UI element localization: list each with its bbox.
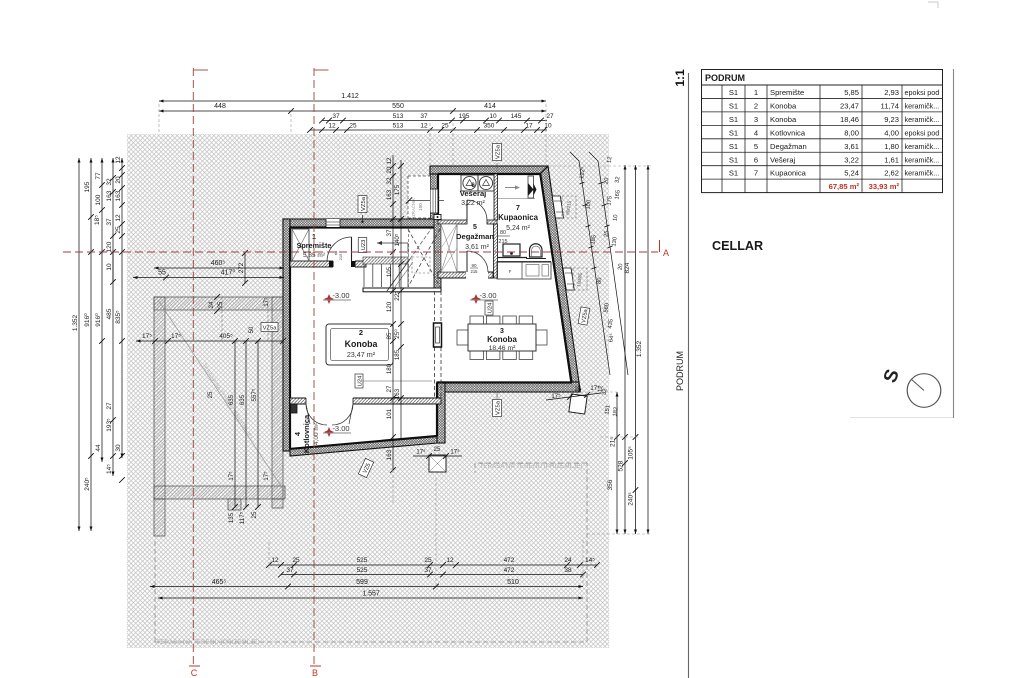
svg-text:635: 635 <box>239 394 246 405</box>
svg-text:-3.00: -3.00 <box>479 291 496 300</box>
svg-text:U24: U24 <box>357 375 363 386</box>
svg-text:240⁵: 240⁵ <box>628 492 635 506</box>
svg-text:Kupaonica: Kupaonica <box>770 169 807 178</box>
svg-text:25: 25 <box>575 387 582 393</box>
svg-text:38: 38 <box>564 567 572 574</box>
svg-text:80: 80 <box>597 277 604 284</box>
svg-text:215: 215 <box>498 239 507 245</box>
svg-text:215: 215 <box>471 269 479 274</box>
svg-text:37: 37 <box>386 229 393 236</box>
svg-text:6: 6 <box>471 182 475 189</box>
svg-text:U24: U24 <box>487 302 493 313</box>
svg-text:VZ5a: VZ5a <box>495 144 501 159</box>
svg-text:510: 510 <box>507 579 519 586</box>
svg-text:12: 12 <box>446 557 454 564</box>
svg-text:105⁵: 105⁵ <box>628 446 635 460</box>
svg-text:215: 215 <box>338 253 343 260</box>
svg-text:17⁵: 17⁵ <box>263 297 270 307</box>
svg-text:1,61: 1,61 <box>884 155 899 164</box>
svg-text:20: 20 <box>618 263 625 270</box>
svg-text:S1: S1 <box>729 155 738 164</box>
svg-text:7: 7 <box>516 205 520 212</box>
svg-text:TERASA NA TERENU (PRIZEMLJE): TERASA NA TERENU (PRIZEMLJE) <box>479 463 582 470</box>
svg-text:3,22 m²: 3,22 m² <box>461 200 485 207</box>
svg-text:1,80: 1,80 <box>884 142 899 151</box>
svg-text:Vešeraj: Vešeraj <box>770 155 796 164</box>
svg-text:3: 3 <box>500 328 504 335</box>
svg-text:20: 20 <box>604 177 611 184</box>
svg-text:S1: S1 <box>729 128 738 137</box>
svg-text:117⁵: 117⁵ <box>239 511 246 524</box>
svg-text:keramičk...: keramičk... <box>905 101 940 110</box>
svg-text:Konoba: Konoba <box>487 335 517 344</box>
svg-text:24: 24 <box>564 557 572 564</box>
svg-text:7: 7 <box>754 169 758 178</box>
svg-text:2: 2 <box>359 328 363 337</box>
svg-text:180: 180 <box>386 363 393 374</box>
svg-text:37: 37 <box>106 218 113 226</box>
svg-text:528: 528 <box>618 460 625 471</box>
svg-text:32: 32 <box>602 388 609 395</box>
svg-text:25: 25 <box>424 557 432 564</box>
svg-text:A: A <box>663 248 669 258</box>
svg-text:23,47: 23,47 <box>840 101 859 110</box>
svg-text:keramičk...: keramičk... <box>905 115 940 124</box>
svg-text:175: 175 <box>394 184 401 195</box>
svg-text:11,74: 11,74 <box>881 101 899 110</box>
svg-text:120: 120 <box>106 241 113 252</box>
svg-text:513: 513 <box>393 123 404 130</box>
svg-text:25: 25 <box>441 123 449 130</box>
svg-text:1.557: 1.557 <box>362 591 380 598</box>
svg-text:635: 635 <box>228 394 235 405</box>
svg-text:18⁵: 18⁵ <box>94 215 101 225</box>
svg-text:485: 485 <box>106 308 113 319</box>
svg-text:417⁰: 417⁰ <box>221 269 236 277</box>
svg-text:185: 185 <box>394 349 401 360</box>
svg-text:Kotlovnica: Kotlovnica <box>302 414 311 453</box>
svg-text:414: 414 <box>484 103 496 110</box>
svg-text:557⁵: 557⁵ <box>251 388 258 401</box>
svg-text:17⁵: 17⁵ <box>450 449 460 456</box>
svg-text:12: 12 <box>115 156 122 164</box>
svg-text:1.352: 1.352 <box>72 314 79 331</box>
svg-text:465⁵: 465⁵ <box>212 579 227 586</box>
svg-text:32: 32 <box>386 177 393 184</box>
svg-text:33,93 m²: 33,93 m² <box>869 182 900 191</box>
svg-text:22⁵: 22⁵ <box>394 291 401 301</box>
svg-text:VZ5a: VZ5a <box>263 325 278 331</box>
svg-text:5,24 m²: 5,24 m² <box>506 225 530 232</box>
svg-text:80: 80 <box>500 230 506 236</box>
svg-text:CELLAR: CELLAR <box>712 239 763 253</box>
svg-text:C: C <box>191 668 198 678</box>
svg-text:350: 350 <box>484 123 495 130</box>
svg-text:272: 272 <box>238 262 245 273</box>
svg-text:525: 525 <box>357 557 368 564</box>
svg-text:140⁵: 140⁵ <box>394 233 401 246</box>
svg-text:824: 824 <box>624 262 631 273</box>
svg-text:PODRUM: PODRUM <box>675 351 685 391</box>
svg-text:keramičk...: keramičk... <box>905 169 940 178</box>
svg-text:3,61: 3,61 <box>844 142 859 151</box>
svg-text:Konoba: Konoba <box>345 339 378 349</box>
svg-text:17⁵: 17⁵ <box>551 393 561 400</box>
svg-text:10: 10 <box>106 263 113 271</box>
svg-text:4: 4 <box>295 432 302 436</box>
svg-text:163: 163 <box>386 449 393 460</box>
svg-text:50: 50 <box>249 326 255 333</box>
svg-text:448: 448 <box>214 103 226 110</box>
svg-text:24: 24 <box>209 301 215 308</box>
svg-text:4: 4 <box>754 128 758 137</box>
svg-text:25: 25 <box>434 447 441 453</box>
svg-text:5: 5 <box>754 142 758 151</box>
svg-text:17⁵: 17⁵ <box>228 471 235 481</box>
svg-text:17⁵: 17⁵ <box>590 385 600 392</box>
svg-text:S1: S1 <box>729 115 738 124</box>
svg-text:12: 12 <box>607 156 614 163</box>
svg-text:100: 100 <box>95 194 102 205</box>
svg-text:8,00: 8,00 <box>844 128 859 137</box>
svg-text:916⁰: 916⁰ <box>94 313 102 327</box>
svg-text:5,24: 5,24 <box>844 169 859 178</box>
svg-text:4,00: 4,00 <box>884 128 899 137</box>
svg-text:64⁵: 64⁵ <box>607 332 615 342</box>
svg-text:25: 25 <box>292 557 300 564</box>
svg-text:513: 513 <box>393 113 404 120</box>
svg-text:37: 37 <box>424 567 432 574</box>
svg-text:10: 10 <box>613 214 620 221</box>
svg-text:525: 525 <box>357 567 368 574</box>
svg-text:B: B <box>312 668 318 678</box>
svg-text:Kupaonica: Kupaonica <box>498 213 539 222</box>
svg-text:25: 25 <box>218 301 224 308</box>
svg-text:12: 12 <box>115 214 122 222</box>
svg-text:VZ5a: VZ5a <box>361 196 367 211</box>
svg-text:S1: S1 <box>729 142 738 151</box>
svg-text:10: 10 <box>544 123 552 130</box>
svg-text:PROZRAČNIK: PROZRAČNIK <box>411 198 416 226</box>
svg-text:10: 10 <box>489 113 497 120</box>
svg-text:17⁵: 17⁵ <box>263 471 270 481</box>
svg-text:37: 37 <box>332 113 340 120</box>
svg-text:14⁵: 14⁵ <box>106 464 113 474</box>
svg-text:12: 12 <box>271 557 279 564</box>
svg-text:20: 20 <box>386 166 393 173</box>
svg-text:195: 195 <box>84 181 91 192</box>
svg-text:163: 163 <box>386 189 393 200</box>
svg-text:1: 1 <box>754 88 758 97</box>
svg-text:27: 27 <box>546 113 554 120</box>
svg-text:25⁰: 25⁰ <box>394 329 401 339</box>
svg-text:6: 6 <box>754 155 758 164</box>
svg-text:17: 17 <box>525 123 533 130</box>
svg-text:U23: U23 <box>361 240 367 251</box>
svg-text:37: 37 <box>420 113 428 120</box>
svg-text:2,93: 2,93 <box>884 88 899 97</box>
svg-text:keramičk...: keramičk... <box>905 155 940 164</box>
svg-text:599: 599 <box>356 579 368 586</box>
svg-text:Vešeraj: Vešeraj <box>460 189 487 198</box>
svg-text:3: 3 <box>754 115 758 124</box>
svg-text:135: 135 <box>228 512 235 523</box>
svg-text:32: 32 <box>615 176 622 183</box>
svg-text:100: 100 <box>418 203 423 211</box>
svg-text:epoksi pod: epoksi pod <box>905 88 940 97</box>
svg-text:916⁰: 916⁰ <box>83 313 91 327</box>
svg-text:30: 30 <box>115 444 122 452</box>
svg-text:25: 25 <box>251 511 258 518</box>
svg-text:epoksi pod: epoksi pod <box>905 128 940 137</box>
svg-text:Konoba: Konoba <box>770 115 797 124</box>
svg-text:405⁵: 405⁵ <box>219 333 233 340</box>
svg-text:27: 27 <box>106 402 113 410</box>
svg-text:12: 12 <box>420 123 428 130</box>
svg-text:14⁵: 14⁵ <box>585 557 595 564</box>
svg-text:Konoba: Konoba <box>770 101 797 110</box>
svg-text:5,85: 5,85 <box>844 88 859 97</box>
svg-text:145: 145 <box>511 113 522 120</box>
svg-text:1:1: 1:1 <box>673 69 687 87</box>
svg-text:S1: S1 <box>729 101 738 110</box>
svg-text:193⁵: 193⁵ <box>106 418 113 432</box>
svg-text:TERASA NA TERENU (PRIZEMLJE): TERASA NA TERENU (PRIZEMLJE) <box>156 639 259 646</box>
svg-text:9,23: 9,23 <box>884 115 899 124</box>
svg-text:Degažman: Degažman <box>770 142 807 151</box>
svg-text:105: 105 <box>386 266 393 277</box>
svg-text:55: 55 <box>158 270 166 277</box>
svg-text:VZ5a: VZ5a <box>495 400 501 415</box>
svg-text:77: 77 <box>95 172 102 180</box>
svg-text:2: 2 <box>754 101 758 110</box>
svg-text:17⁵: 17⁵ <box>171 333 181 340</box>
svg-text:S1: S1 <box>729 169 738 178</box>
svg-text:356: 356 <box>607 479 614 490</box>
svg-text:120: 120 <box>386 301 393 312</box>
svg-text:163: 163 <box>106 190 113 201</box>
svg-text:18,46 m²: 18,46 m² <box>489 345 517 352</box>
svg-text:Spremište: Spremište <box>770 88 804 97</box>
svg-text:S1: S1 <box>729 88 738 97</box>
svg-text:25: 25 <box>208 391 214 398</box>
svg-text:32: 32 <box>106 178 113 186</box>
svg-text:67,85 m²: 67,85 m² <box>829 182 860 191</box>
svg-text:37: 37 <box>286 567 294 574</box>
svg-text:5: 5 <box>473 224 477 231</box>
svg-text:1.412: 1.412 <box>341 93 359 100</box>
svg-text:17⁵: 17⁵ <box>142 333 152 340</box>
svg-text:PODRUM: PODRUM <box>705 73 745 83</box>
svg-text:1.352: 1.352 <box>636 340 643 357</box>
svg-text:101: 101 <box>386 408 393 419</box>
svg-text:472: 472 <box>504 557 515 564</box>
svg-text:21⁵: 21⁵ <box>610 437 617 447</box>
svg-text:23,47 m²: 23,47 m² <box>347 350 376 359</box>
svg-text:Degažman: Degažman <box>456 232 494 241</box>
svg-text:472: 472 <box>504 567 515 574</box>
svg-text:163: 163 <box>115 190 122 201</box>
svg-text:12: 12 <box>328 123 336 130</box>
svg-text:20: 20 <box>115 176 122 184</box>
svg-text:163: 163 <box>394 388 401 399</box>
svg-text:25: 25 <box>349 123 357 130</box>
svg-text:3,22: 3,22 <box>844 155 859 164</box>
svg-text:85: 85 <box>386 332 393 339</box>
svg-text:44: 44 <box>95 444 102 452</box>
svg-text:835⁵: 835⁵ <box>115 310 122 324</box>
svg-text:195: 195 <box>459 113 470 120</box>
svg-text:Kotlovnica: Kotlovnica <box>770 128 806 137</box>
svg-text:90: 90 <box>471 263 477 268</box>
svg-text:3,61 m²: 3,61 m² <box>465 244 489 251</box>
svg-text:240⁵: 240⁵ <box>84 477 91 491</box>
svg-text:17⁵: 17⁵ <box>416 449 426 456</box>
svg-text:460⁵: 460⁵ <box>211 260 226 267</box>
svg-text:550: 550 <box>392 103 404 110</box>
svg-text:F: F <box>509 269 512 274</box>
svg-text:27: 27 <box>386 385 393 392</box>
svg-text:-3.00: -3.00 <box>332 424 349 433</box>
svg-text:keramičk...: keramičk... <box>905 142 940 151</box>
svg-text:18,46: 18,46 <box>840 115 859 124</box>
svg-text:-3.00: -3.00 <box>332 291 349 300</box>
svg-text:25: 25 <box>115 226 122 234</box>
svg-text:2,62: 2,62 <box>884 169 899 178</box>
svg-text:25: 25 <box>604 230 611 237</box>
svg-text:12: 12 <box>386 157 393 164</box>
